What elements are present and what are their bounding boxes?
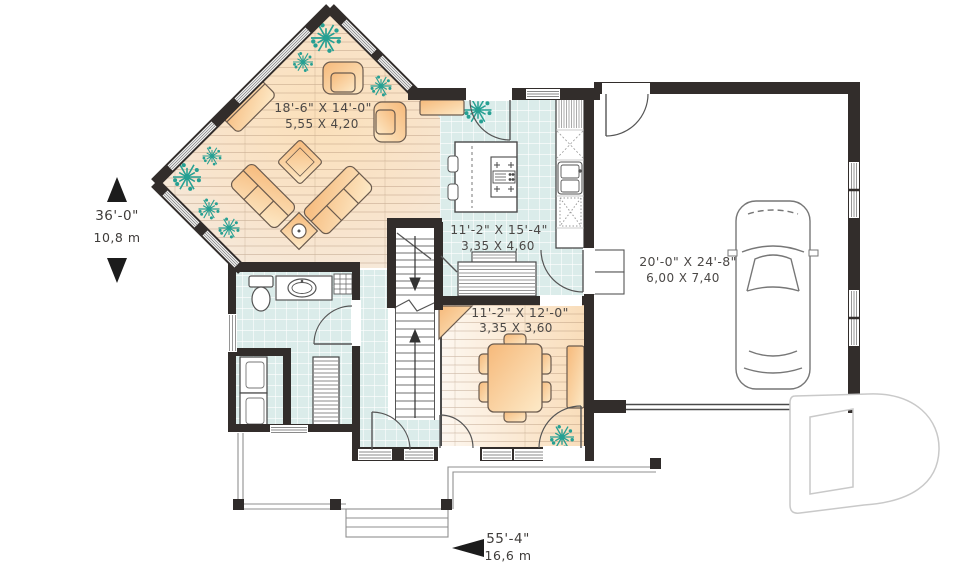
floor-plan: 18'-6" X 14'-0" 5,55 X 4,20 11'-2" X 15'… (0, 0, 960, 569)
overall-depth-metric: 10,8 m (94, 230, 141, 245)
shelf-unit (334, 274, 352, 294)
console-table (420, 100, 464, 115)
living-room-size-metric: 5,55 X 4,20 (285, 117, 359, 131)
porch-posts (233, 458, 661, 510)
side-mirror (809, 250, 818, 256)
drummond-logo (790, 394, 939, 513)
garage-size-metric: 6,00 X 7,40 (646, 271, 720, 285)
kitchen-size-imperial: 11'-2" X 15'-4" (450, 222, 548, 237)
floor-plan-drawing (0, 0, 960, 569)
vanity-sink (276, 276, 332, 300)
car (728, 201, 818, 389)
staircase (390, 224, 441, 448)
living-room-size-imperial: 18'-6" X 14'-0" (274, 100, 372, 115)
louvered-closet-door (313, 357, 339, 429)
sideboard (567, 346, 584, 408)
dining-room-size-imperial: 11'-2" X 12'-0" (471, 305, 569, 320)
garage-steps (594, 250, 624, 294)
overall-width-imperial: 55'-4" (486, 531, 530, 547)
porch-steps (346, 509, 448, 537)
armchair (323, 62, 363, 94)
washer-dryer (240, 357, 267, 429)
dining-room-size-metric: 3,35 X 3,60 (479, 321, 553, 335)
kitchen-size-metric: 3,35 X 4,60 (461, 239, 535, 253)
arrow-left-icon (452, 539, 484, 557)
garage-size-imperial: 20'-0" X 24'-8" (639, 254, 737, 269)
arrow-down-icon (107, 258, 127, 283)
kitchen-island (455, 142, 517, 212)
dining-table (488, 344, 542, 412)
overall-depth-imperial: 36'-0" (95, 208, 139, 224)
stool (448, 156, 458, 172)
kitchen-counter (556, 98, 584, 248)
armchair (374, 102, 406, 142)
arrow-up-icon (107, 177, 127, 202)
garage-side-door (606, 94, 648, 136)
stool (448, 184, 458, 200)
overall-width-metric: 16,6 m (485, 548, 532, 563)
